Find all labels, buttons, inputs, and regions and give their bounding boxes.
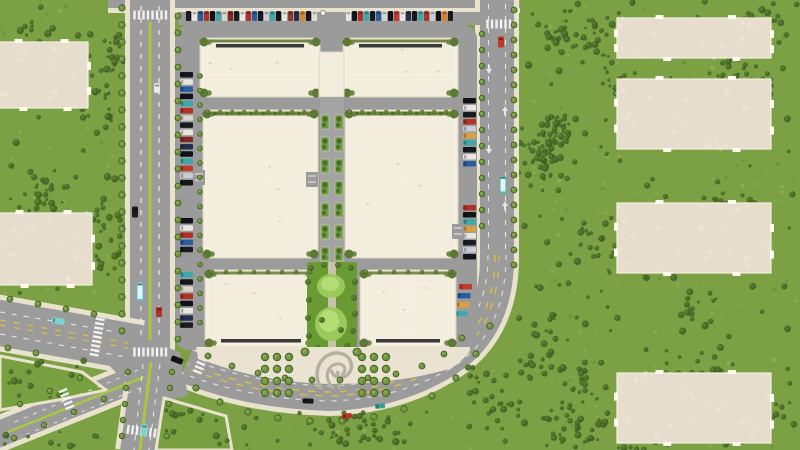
pad-right-1[interactable]: [614, 15, 774, 61]
car-black-west-avenue[interactable]: [132, 207, 138, 218]
mall-entrance: [452, 224, 464, 239]
lot-prop: [321, 11, 326, 16]
roof-edge-strip: [221, 339, 301, 343]
pad-right-2[interactable]: [614, 76, 774, 152]
pad-left-2[interactable]: [0, 210, 95, 288]
roof-edge-strip: [376, 339, 440, 343]
store-north-east[interactable]: [343, 38, 459, 98]
car-cyan-south-road[interactable]: [140, 424, 147, 437]
car-white-west-avenue[interactable]: [154, 83, 160, 93]
game-viewport[interactable]: [0, 0, 800, 450]
car-red-west-avenue[interactable]: [156, 307, 162, 317]
store-south-west[interactable]: [205, 270, 318, 348]
mall-complex[interactable]: [175, 11, 480, 393]
city-map[interactable]: [0, 0, 800, 450]
store-north-west[interactable]: [200, 38, 321, 98]
pocket-park[interactable]: [305, 262, 358, 353]
store-mid-east[interactable]: [345, 110, 459, 259]
pad-right-4[interactable]: [614, 370, 774, 446]
roof-edge-strip: [216, 44, 304, 48]
pad-left-1[interactable]: [0, 39, 91, 111]
mall-connector: [319, 52, 344, 97]
roof-edge-strip: [359, 44, 442, 48]
bus-teal-right-avenue[interactable]: [500, 177, 507, 194]
central-walkway: [320, 97, 344, 270]
car-teal-boulevard[interactable]: [375, 403, 385, 409]
bus-cyan-west-avenue[interactable]: [137, 283, 144, 301]
store-mid-west[interactable]: [203, 110, 319, 259]
store-south-east[interactable]: [360, 270, 457, 348]
pad-right-3[interactable]: [614, 200, 774, 276]
car-black-boulevard[interactable]: [302, 398, 313, 403]
car-red-right-avenue[interactable]: [498, 37, 504, 48]
mall-entrance: [306, 172, 318, 187]
